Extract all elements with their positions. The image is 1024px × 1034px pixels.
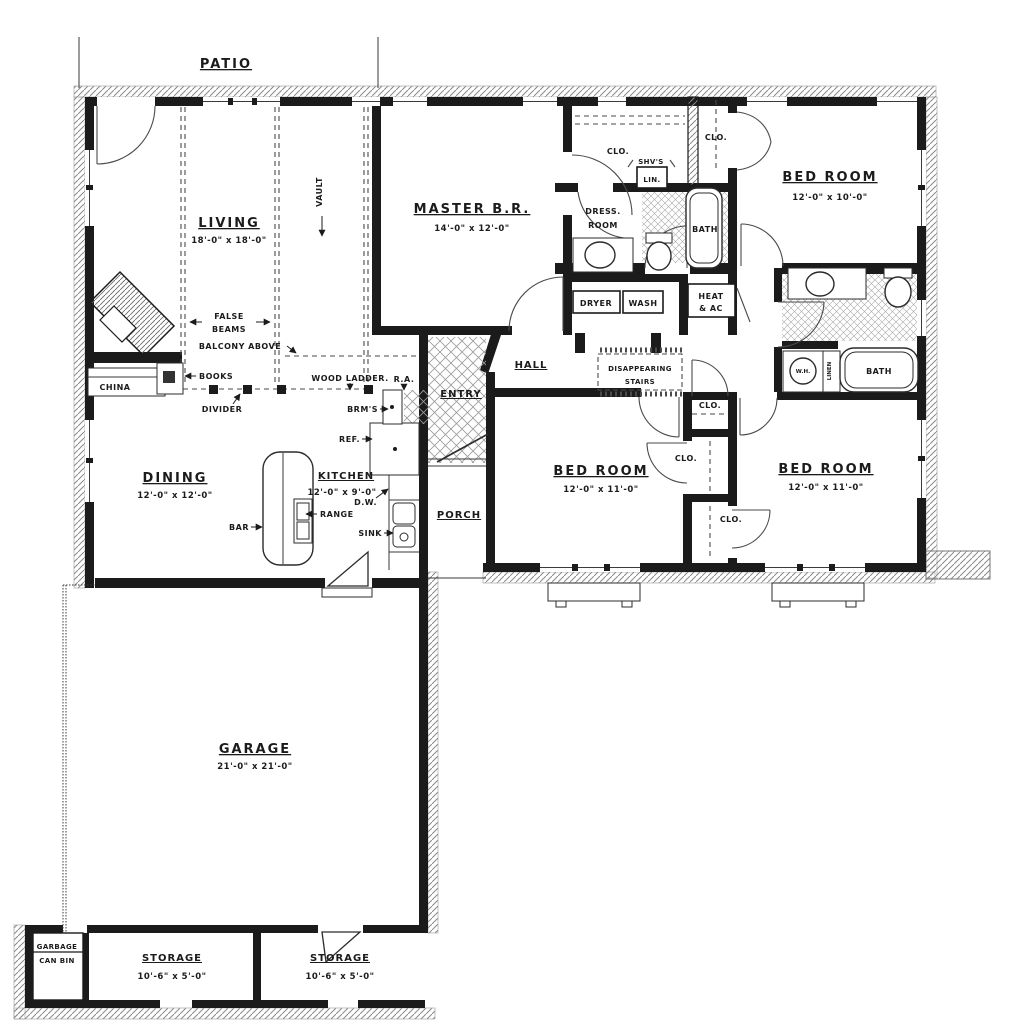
- dining-label: DINING: [143, 471, 208, 486]
- bedroom-tr-door: [741, 224, 783, 266]
- bedroom-tr-closet-doors: [737, 112, 771, 170]
- stairs-label-1: DISAPPEARING: [608, 365, 672, 373]
- sink-label: SINK: [358, 529, 382, 538]
- refrigerator-label: REF.: [339, 435, 360, 444]
- garbage-label-1: GARBAGE: [37, 943, 78, 951]
- kitchen-island-bar: [263, 452, 313, 565]
- kitchen-garage-door: [322, 552, 372, 597]
- bath2-sink: [806, 272, 834, 296]
- sink-bowl-1: [393, 503, 415, 524]
- washer-label: WASH: [628, 299, 657, 308]
- return-air-label: R.A.: [394, 375, 415, 384]
- bedroom-mid-dims: 12'-0" x 11'-0": [563, 485, 639, 495]
- porch-label: PORCH: [437, 510, 481, 521]
- floor-plan-page: PATIO LIVING 18'-0" x 18'-0" VAULT MASTE…: [0, 0, 1024, 1034]
- window-living-door-gap: [97, 97, 155, 106]
- water-heater-label: W.H.: [796, 369, 810, 375]
- bath1-label: BATH: [692, 225, 718, 234]
- labels: PATIO LIVING 18'-0" x 18'-0" VAULT MASTE…: [37, 57, 892, 982]
- garbage-label-2: CAN BIN: [39, 957, 74, 965]
- bedroom-mid-label: BED ROOM: [553, 464, 648, 479]
- stairs-label-2: STAIRS: [625, 378, 655, 386]
- kitchen-label: KITCHEN: [318, 471, 374, 482]
- dryer-label: DRYER: [580, 299, 612, 308]
- fireplace: [90, 272, 174, 356]
- toilet-1-bowl: [647, 242, 671, 270]
- patio-label: PATIO: [200, 57, 252, 72]
- window-right-bedroom-tr: [917, 150, 926, 226]
- wood-ladder-label: WOOD LADDER.: [311, 374, 388, 383]
- linen-label: LINEN: [827, 361, 833, 380]
- storage-right-dims: 10'-6" x 5'-0": [305, 972, 374, 982]
- window-bedroom-br-south: [765, 563, 865, 572]
- bar-label: BAR: [229, 523, 249, 532]
- linen-cab-label: LIN.: [643, 176, 660, 184]
- hall-closet-door: [692, 360, 728, 396]
- master-bedroom-label: MASTER B.R.: [414, 202, 531, 217]
- china-label: CHINA: [100, 383, 131, 392]
- window-left-living: [85, 150, 94, 226]
- window-master-1: [393, 97, 427, 106]
- bedroom-br-dims: 12'-0" x 11'-0": [788, 483, 864, 493]
- false-beams-label-1: FALSE: [214, 312, 244, 321]
- window-closet-top: [598, 97, 626, 106]
- closet-label-top: CLO.: [607, 147, 629, 156]
- bedroom-br-door: [740, 398, 777, 435]
- vault-label: VAULT: [315, 177, 324, 207]
- bedroom-mid-closet-door: [647, 443, 687, 483]
- window-master-2: [523, 97, 557, 106]
- brooms-label: BRM'S: [347, 405, 378, 414]
- range-label: RANGE: [320, 510, 354, 519]
- bedroom-tr-label: BED ROOM: [782, 170, 877, 185]
- living-dims: 18'-0" x 18'-0": [191, 236, 267, 246]
- heat-ac-label-1: HEAT: [698, 292, 723, 301]
- storage-left-dims: 10'-6" x 5'-0": [137, 972, 206, 982]
- hall-label: HALL: [515, 360, 548, 371]
- storage-left-label: STORAGE: [142, 953, 202, 964]
- window-bedroom-tr-1: [747, 97, 787, 106]
- closet-shelf-lines: [575, 116, 685, 124]
- false-beams-label-2: BEAMS: [212, 325, 246, 334]
- closet-label-tr: CLO.: [705, 133, 727, 142]
- dress-room-label-2: ROOM: [588, 221, 618, 230]
- planter-boxes: [548, 583, 864, 607]
- window-bedroom-mid-south: [540, 563, 640, 572]
- living-label: LIVING: [198, 216, 260, 231]
- garage-dims: 21'-0" x 21'-0": [217, 762, 293, 772]
- bath2-label: BATH: [866, 367, 892, 376]
- bedroom-br-label: BED ROOM: [778, 462, 873, 477]
- window-bedroom-tr-2: [877, 97, 917, 106]
- bedroom-tr-dims: 12'-0" x 10'-0": [792, 193, 868, 203]
- balcony-above-label: BALCONY ABOVE: [199, 342, 281, 351]
- shelves-label: SHV'S: [638, 158, 664, 166]
- storage-right-label: STORAGE: [310, 953, 370, 964]
- divider-line: [183, 385, 373, 394]
- bedroom-mid-door: [639, 397, 679, 437]
- living-patio-door: [97, 106, 155, 164]
- books-label: BOOKS: [199, 372, 233, 381]
- heat-closet-door: [737, 288, 750, 322]
- toilet-2-bowl: [885, 277, 911, 307]
- dishwasher-label: D.W.: [354, 498, 377, 507]
- dress-room-sink: [585, 242, 615, 268]
- entry-tile-floor: [428, 337, 486, 463]
- dining-dims: 12'-0" x 12'-0": [137, 491, 213, 501]
- kitchen-dims: 12'-0" x 9'-0": [307, 488, 376, 498]
- window-right-bath: [917, 300, 926, 336]
- closet-label-mid: CLO.: [675, 454, 697, 463]
- dress-room-label-1: DRESS.: [585, 207, 620, 216]
- closet-label-hall: CLO.: [699, 401, 721, 410]
- closet-label-br: CLO.: [720, 515, 742, 524]
- window-left-dining: [85, 420, 94, 502]
- floor-plan-drawing: PATIO LIVING 18'-0" x 18'-0" VAULT MASTE…: [0, 0, 1024, 1034]
- exterior-pad: [926, 551, 990, 579]
- window-living-2: [352, 97, 380, 106]
- master-door: [509, 277, 563, 331]
- window-living: [203, 97, 280, 106]
- garage-label: GARAGE: [219, 742, 291, 757]
- entry-label: ENTRY: [440, 389, 481, 400]
- window-right-bedroom-br: [917, 420, 926, 498]
- heat-ac-label-2: & AC: [699, 304, 723, 313]
- master-bedroom-dims: 14'-0" x 12'-0": [434, 224, 510, 234]
- divider-label: DIVIDER: [202, 405, 243, 414]
